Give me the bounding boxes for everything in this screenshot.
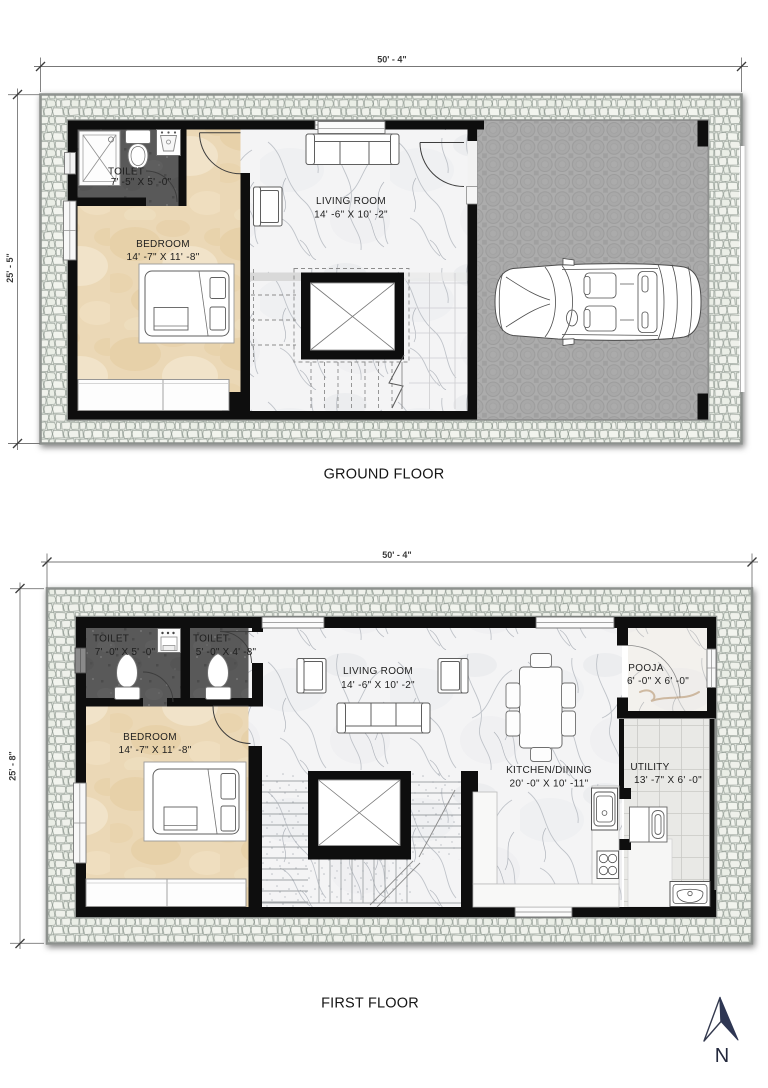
svg-text:BEDROOM: BEDROOM <box>136 239 190 250</box>
svg-text:14' -7" X 11' -8": 14' -7" X 11' -8" <box>118 745 191 756</box>
svg-text:TOILET: TOILET <box>108 167 144 178</box>
svg-text:50' - 4": 50' - 4" <box>382 550 411 560</box>
svg-text:20' -0" X 10' -11": 20' -0" X 10' -11" <box>510 779 589 790</box>
svg-text:POOJA: POOJA <box>628 663 663 674</box>
svg-text:25' - 5": 25' - 5" <box>5 253 15 282</box>
svg-text:6' -0" X 6' -0": 6' -0" X 6' -0" <box>627 676 689 687</box>
svg-text:14' -6" X 10' -2": 14' -6" X 10' -2" <box>341 680 415 691</box>
svg-text:TOILET: TOILET <box>93 634 129 645</box>
svg-text:13' -7" X 6' -0": 13' -7" X 6' -0" <box>634 775 702 786</box>
svg-text:GROUND FLOOR: GROUND FLOOR <box>324 467 445 483</box>
svg-text:14' -6" X 10' -2": 14' -6" X 10' -2" <box>314 210 388 221</box>
svg-text:LIVING ROOM: LIVING ROOM <box>343 666 413 677</box>
svg-text:50' - 4": 50' - 4" <box>377 55 406 65</box>
svg-text:7' -0" X 5' -0": 7' -0" X 5' -0" <box>95 647 156 658</box>
svg-text:25' - 8": 25' - 8" <box>8 751 18 780</box>
svg-text:BEDROOM: BEDROOM <box>123 732 177 743</box>
svg-text:KITCHEN/DINING: KITCHEN/DINING <box>506 765 592 776</box>
svg-text:FIRST FLOOR: FIRST FLOOR <box>321 996 419 1012</box>
svg-text:TOILET: TOILET <box>193 634 229 645</box>
svg-text:N: N <box>715 1045 729 1067</box>
svg-text:7' -5" X 5' -0": 7' -5" X 5' -0" <box>111 177 172 188</box>
svg-text:5' -0" X 4' -8": 5' -0" X 4' -8" <box>196 647 257 658</box>
svg-text:LIVING ROOM: LIVING ROOM <box>316 196 386 207</box>
svg-text:14' -7" X 11' -8": 14' -7" X 11' -8" <box>126 252 199 263</box>
svg-text:UTILITY: UTILITY <box>630 762 669 773</box>
